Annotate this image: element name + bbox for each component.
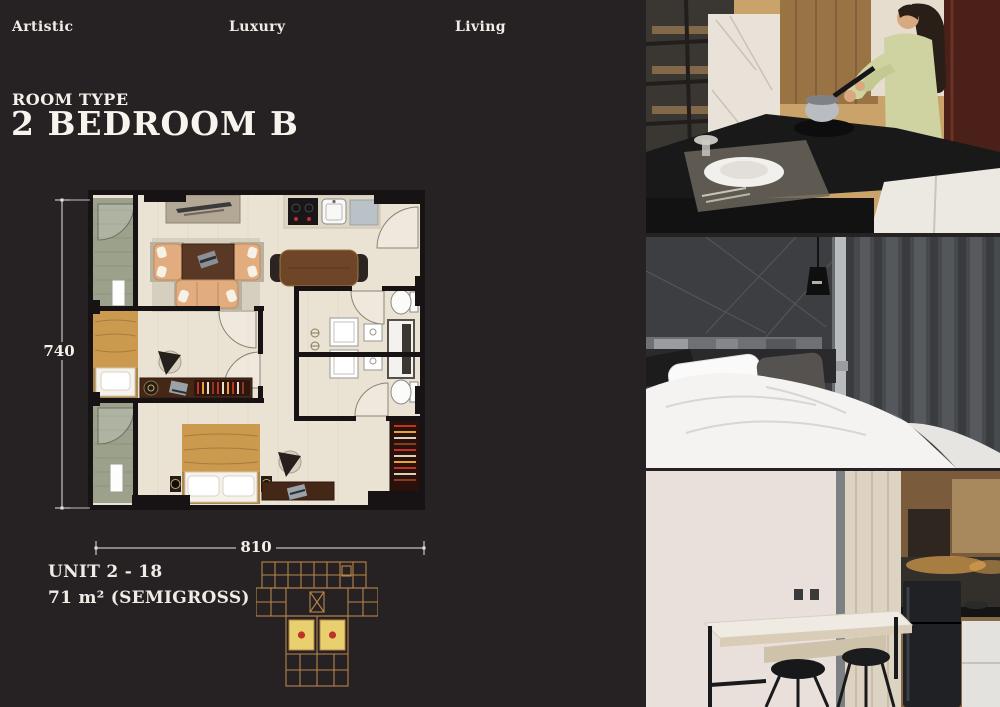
key-plan <box>256 558 378 692</box>
floor-plan <box>88 190 425 510</box>
photo-kitchen-cooking <box>646 0 1000 233</box>
header-word-artistic: Artistic <box>12 19 73 35</box>
unit-area: 71 m² (SEMIGROSS) <box>48 588 250 608</box>
header-word-luxury: Luxury <box>229 19 285 35</box>
photo-bedroom <box>646 237 1000 468</box>
floor-plan-drawing <box>88 190 425 510</box>
header-word-living: Living <box>455 19 506 35</box>
brochure-page: { "page": { "background": "#262223", "te… <box>0 0 1000 707</box>
key-plan-drawing <box>256 558 378 692</box>
unit-number: UNIT 2 - 18 <box>48 562 163 582</box>
dimension-width-label: 810 <box>236 538 276 556</box>
photo-bar-counter <box>646 471 1000 707</box>
dimension-height-label: 740 <box>41 342 77 360</box>
page-title: 2 BEDROOM B <box>11 104 299 143</box>
